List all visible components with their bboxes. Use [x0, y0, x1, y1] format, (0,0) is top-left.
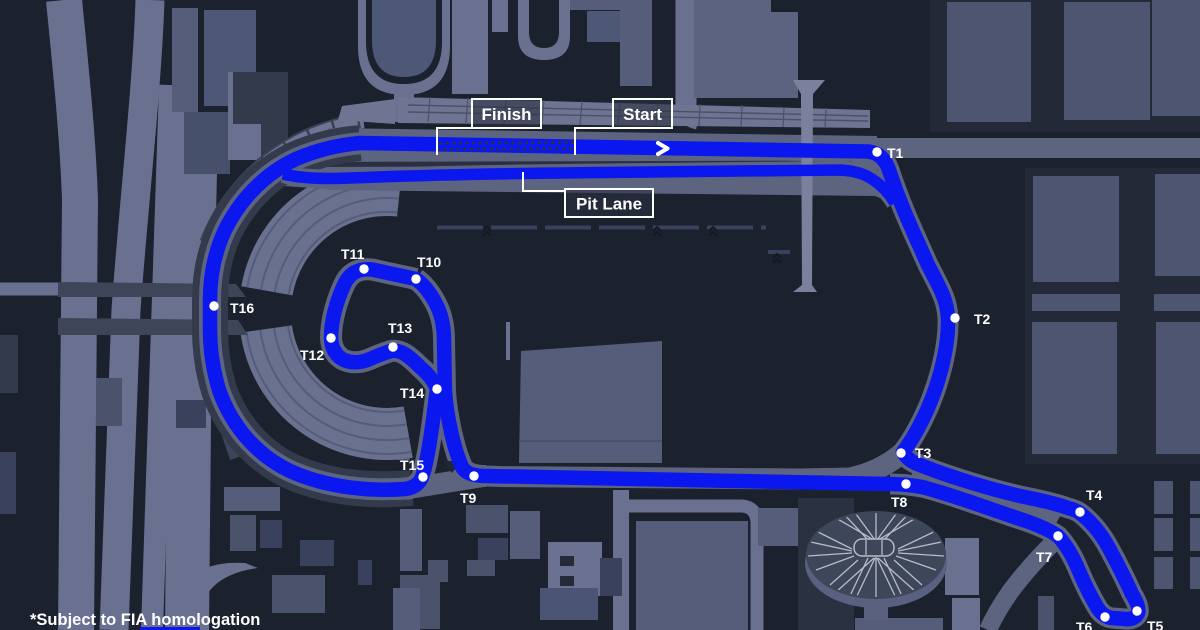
svg-text:T1: T1	[887, 145, 904, 161]
svg-text:Pit Lane: Pit Lane	[576, 195, 642, 214]
svg-text:Finish: Finish	[481, 105, 531, 124]
svg-text:T13: T13	[388, 320, 412, 336]
svg-text:T9: T9	[460, 490, 477, 506]
svg-text:T12: T12	[300, 347, 324, 363]
svg-text:T6: T6	[1076, 619, 1093, 630]
svg-text:T4: T4	[1086, 487, 1103, 503]
svg-text:T11: T11	[341, 246, 365, 262]
svg-text:T3: T3	[915, 445, 932, 461]
svg-text:T8: T8	[891, 494, 908, 510]
svg-text:*Subject to FIA homologation: *Subject to FIA homologation	[30, 611, 260, 629]
svg-text:T5: T5	[1147, 618, 1164, 630]
svg-text:T10: T10	[417, 254, 441, 270]
svg-text:T16: T16	[230, 300, 254, 316]
svg-text:T2: T2	[974, 311, 991, 327]
svg-text:T14: T14	[400, 385, 424, 401]
svg-text:Start: Start	[623, 105, 662, 124]
svg-text:T7: T7	[1036, 549, 1053, 565]
svg-text:T15: T15	[400, 457, 424, 473]
